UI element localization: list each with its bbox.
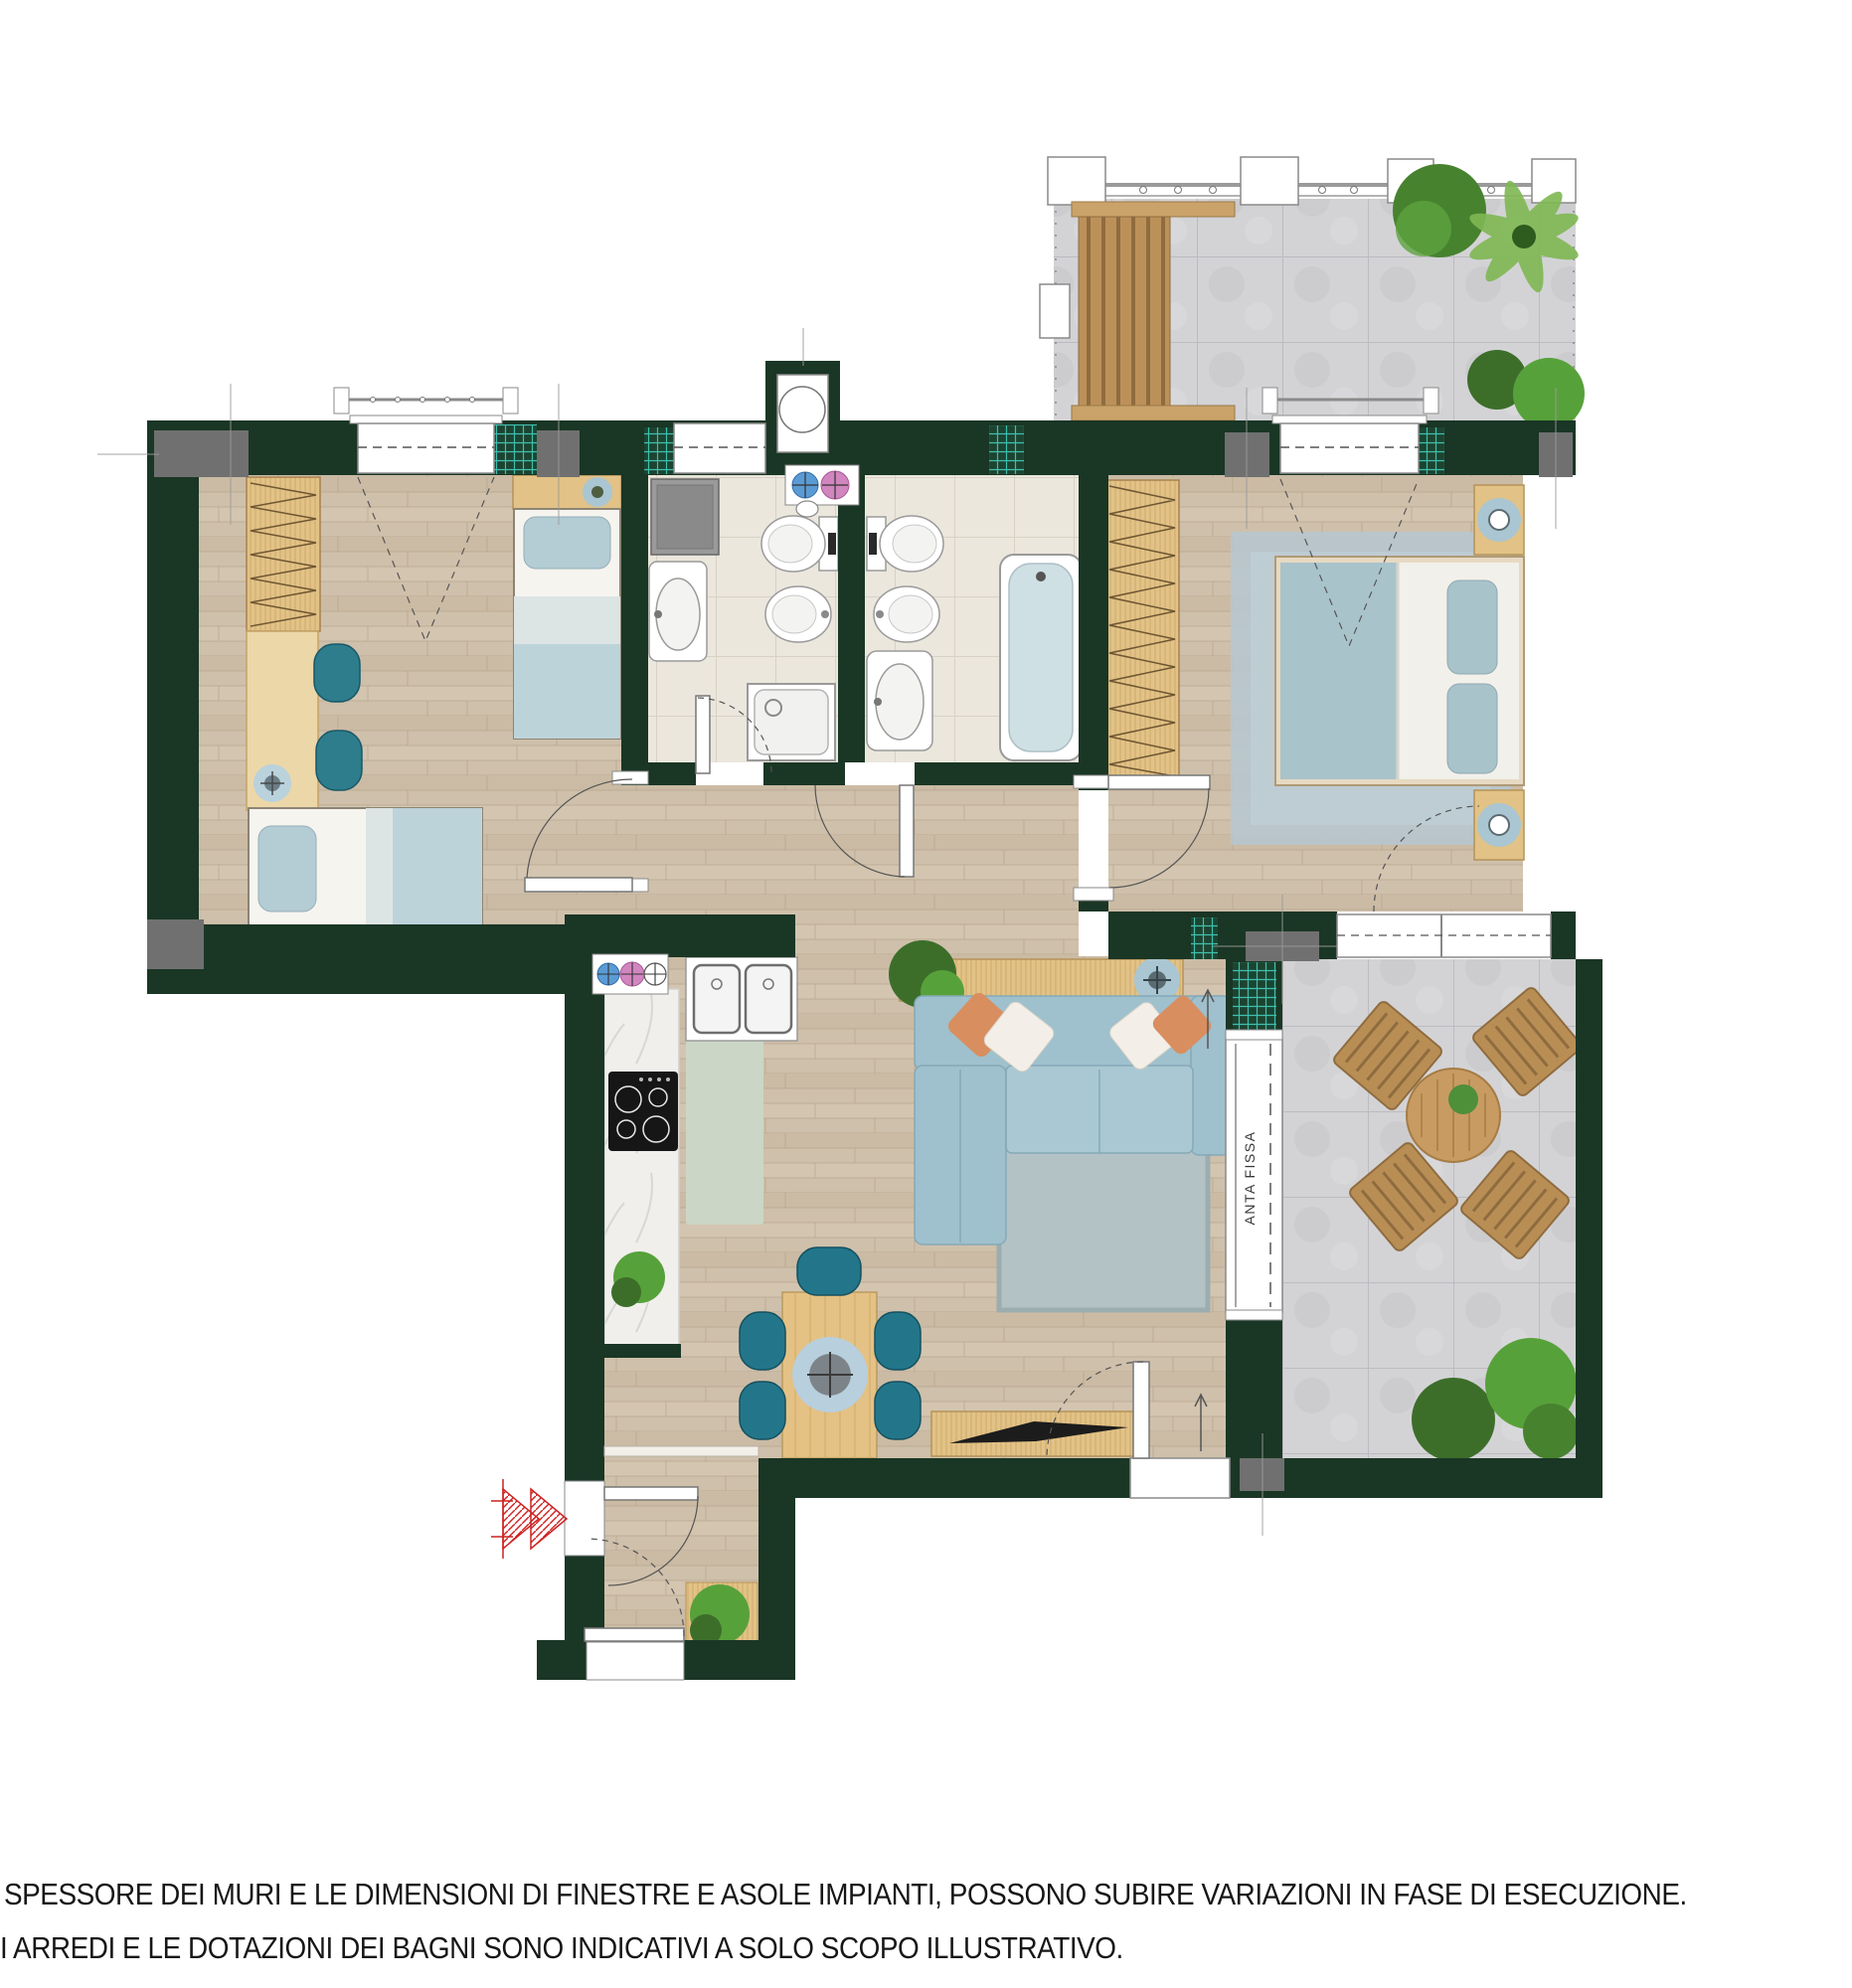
bidet-icon: [874, 586, 939, 642]
floor-plan-page: ANTA FISSA: [0, 0, 1852, 1988]
dining-table-icon: [782, 1292, 877, 1458]
toilet-icon: [867, 516, 943, 572]
bathtub-icon: [1000, 555, 1082, 760]
riser-group-kitchen: [592, 954, 668, 994]
nightstand-icon: [1474, 485, 1524, 555]
terrace-top: [1040, 157, 1585, 429]
wardrobe-icon: [1105, 480, 1179, 780]
anta-fissa-label: ANTA FISSA: [1242, 1131, 1258, 1226]
boiler-icon: [777, 375, 828, 452]
washing-machine-icon: [651, 479, 719, 555]
sink-icon: [649, 562, 707, 661]
disclaimer: SPESSORE DEI MURI E LE DIMENSIONI DI FIN…: [0, 1878, 1687, 1966]
single-bed-icon: [513, 475, 621, 739]
wardrobe-icon: [247, 477, 320, 631]
desk-icon: [247, 631, 318, 810]
toilet-icon: [761, 516, 838, 572]
single-bed-icon: [249, 808, 482, 929]
disclaimer-line-2: I ARREDI E LE DOTAZIONI DEI BAGNI SONO I…: [0, 1931, 1123, 1966]
entrance-arrow-icon: [491, 1479, 567, 1559]
bidet-icon: [765, 586, 831, 642]
terrace-right: [1282, 959, 1583, 1461]
sink-icon: [867, 651, 932, 750]
threshold: [604, 1446, 758, 1456]
disclaimer-line-1: SPESSORE DEI MURI E LE DIMENSIONI DI FIN…: [4, 1878, 1687, 1912]
floor-plan-canvas: ANTA FISSA: [0, 0, 1852, 1988]
double-bed-icon: [1275, 557, 1524, 785]
nightstand-icon: [1474, 790, 1524, 860]
cooktop-icon: [608, 1072, 678, 1151]
window: [674, 423, 765, 473]
shower-icon: [748, 684, 835, 760]
kitchen-sink-icon: [686, 957, 797, 1041]
tv-sideboard-icon: [931, 1411, 1133, 1456]
outdoor-table-icon: [1407, 1069, 1500, 1162]
